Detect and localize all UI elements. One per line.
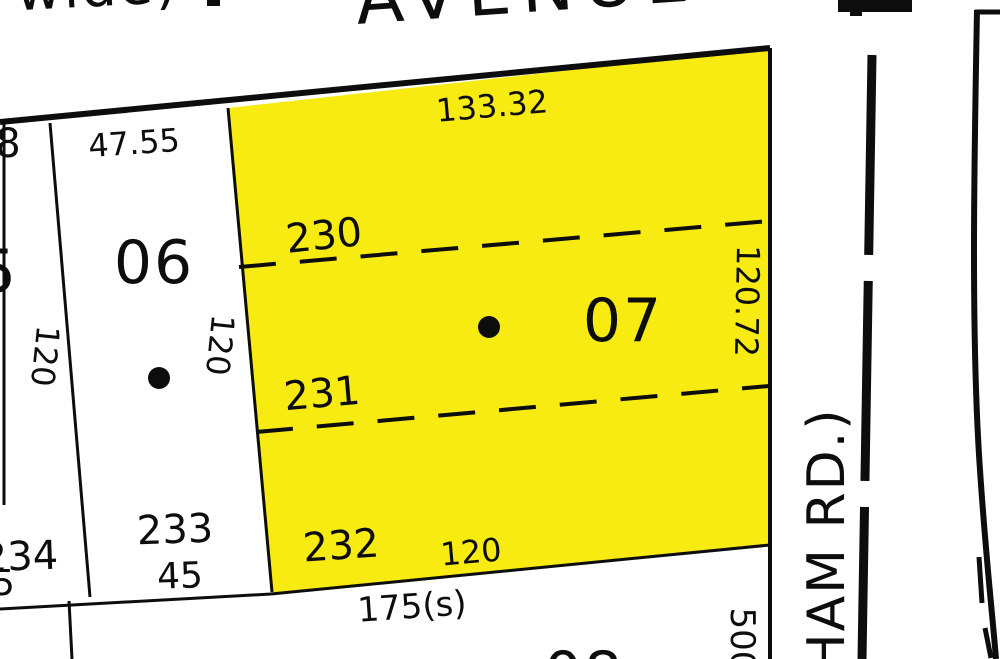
plat-map: wide) AVENUE HAM RD.) 500 07 133.32 120.… — [0, 0, 1000, 659]
south-dim-175s: 175(s) — [356, 586, 467, 628]
lot-234-width-partial: 45 — [0, 566, 15, 602]
parcel-07-dim-right: 120.72 — [730, 245, 764, 358]
cutoff-letter-fragment — [838, 0, 912, 12]
dash-fragment-2 — [985, 628, 991, 658]
dim-fragment-8: 8 — [0, 124, 21, 164]
parcel-07-centroid-dot — [478, 316, 500, 338]
parcel-06-number: 06 — [114, 233, 194, 293]
parcel-08-number-partial: 08 — [544, 644, 624, 659]
highlighted-parcel-07[interactable] — [228, 48, 770, 594]
lot-233-width: 45 — [156, 558, 203, 596]
parcel-06-dim-right: 120 — [201, 313, 239, 377]
lot-232-number: 232 — [302, 523, 381, 568]
lot-231-number: 231 — [282, 371, 362, 418]
parcel-06-dim-left: 120 — [26, 324, 64, 388]
parcel-06-centroid-dot — [148, 367, 170, 389]
street-name-right: HAM RD.) — [801, 407, 853, 659]
parcel-07-dim-top: 133.32 — [435, 85, 549, 127]
parcel-07-number: 07 — [583, 291, 663, 351]
parcel-05-number-partial: 5 — [0, 242, 18, 302]
lot-line-bottom-left — [0, 594, 271, 609]
lot-line-south — [69, 601, 72, 659]
road-centerline — [862, 55, 872, 659]
house-number-partial: 500 — [725, 608, 759, 659]
cutoff-letter-fragment-stub — [850, 8, 862, 16]
cutoff-mark — [207, 0, 220, 6]
parcel-06-dim-top: 47.55 — [87, 124, 181, 162]
lot-233-number: 233 — [136, 509, 214, 552]
dash-fragment-1 — [979, 557, 982, 603]
lot-230-number: 230 — [284, 212, 364, 260]
parcel-07-dim-bottom: 120 — [439, 533, 503, 570]
